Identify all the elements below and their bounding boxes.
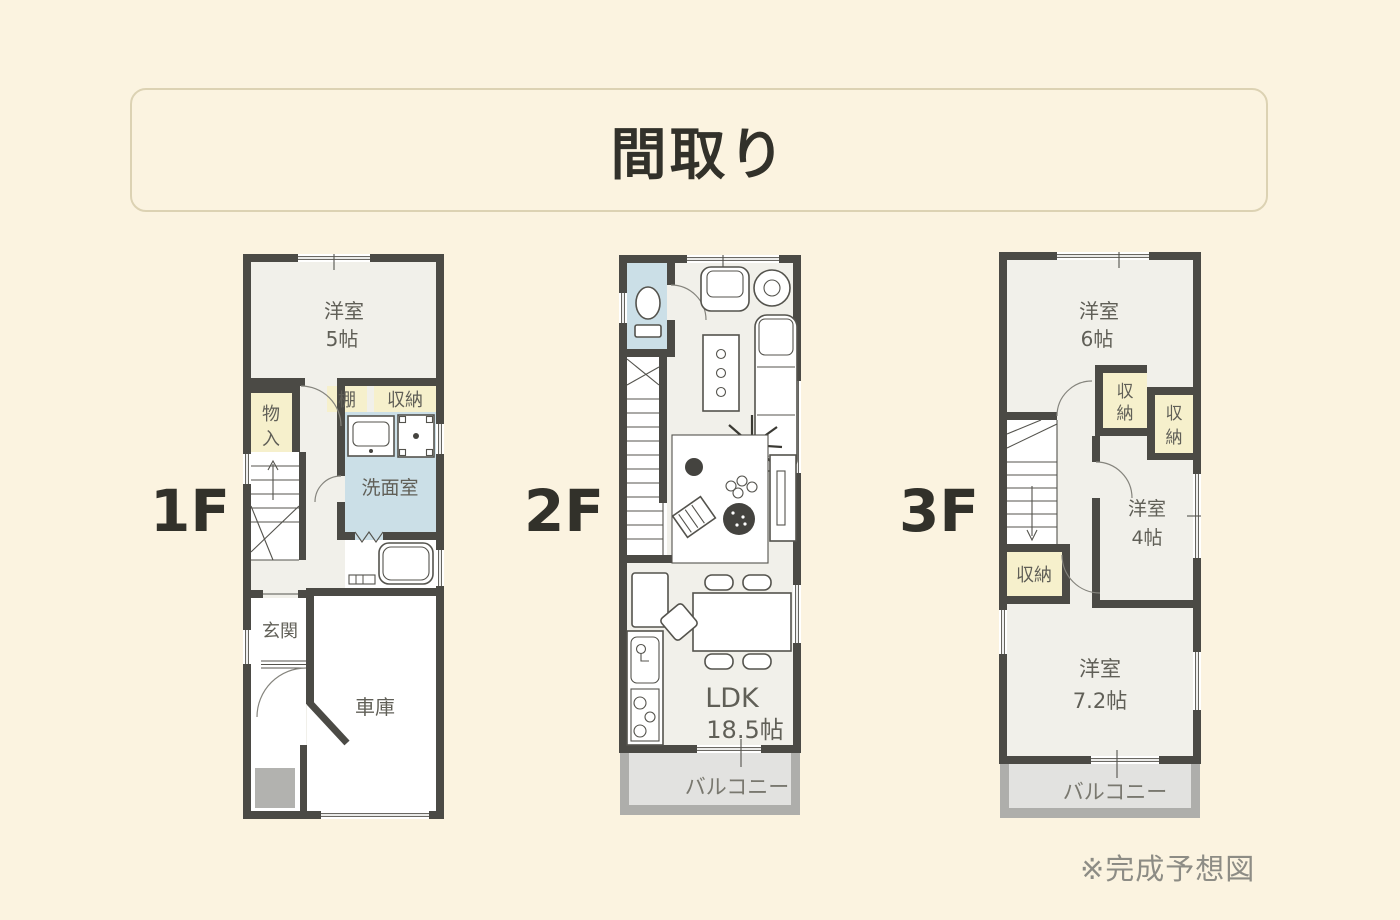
balcony-label: バルコニー (1063, 780, 1168, 804)
balcony-label: バルコニー (685, 775, 790, 799)
room-label: 収 (1166, 404, 1183, 424)
room-size-label: 18.5帖 (706, 716, 783, 744)
floor-plan-page: 間取り 1F 2F 3F (0, 0, 1400, 920)
tv-board (770, 455, 796, 541)
room-label: 収納 (1016, 565, 1052, 586)
room-label: 納 (1117, 404, 1134, 424)
chair (743, 654, 771, 669)
chair (743, 575, 771, 590)
room-size-label: 7.2帖 (1073, 689, 1127, 713)
room-label: 物 (262, 404, 280, 425)
pouf (723, 503, 755, 535)
room-label: 洋室 (1128, 498, 1166, 520)
floor-label-2f: 2F (524, 482, 604, 540)
room-size-label: 4帖 (1131, 527, 1162, 549)
chair (705, 575, 733, 590)
floor-label-1f: 1F (150, 482, 230, 540)
floor-plan-2f: LDK 18.5帖 バルコニー (619, 255, 801, 816)
meter-box (255, 768, 295, 808)
room-label: 車庫 (355, 695, 395, 719)
room-label: 洋室 (324, 299, 364, 323)
shelf-unit (703, 335, 739, 411)
cushion-round (685, 458, 703, 476)
rendering-disclaimer: ※完成予想図 (1080, 846, 1255, 888)
round-stool (754, 270, 790, 306)
bathtub-icon (379, 543, 433, 584)
floor-plan-1f: 洋室 5帖 物 入 棚 収納 洗面室 玄関 車庫 (243, 254, 444, 819)
room-label: 収納 (387, 390, 423, 411)
room-label: 棚 (338, 390, 356, 411)
staircase-area (251, 452, 299, 560)
toilet-icon (635, 325, 661, 337)
rug (672, 435, 768, 563)
room-label: 洋室 (1079, 657, 1121, 681)
floor-label-3f: 3F (899, 482, 979, 540)
room-label: LDK (705, 683, 760, 714)
page-title: 間取り (611, 110, 788, 191)
garage-door (321, 811, 429, 819)
room-label: 玄関 (262, 621, 298, 642)
chair (705, 654, 733, 669)
floor-plan-3f: 洋室 6帖 収 納 収 納 洋室 4帖 収納 洋室 7.2帖 バルコニー (999, 252, 1201, 818)
room-label: 洗面室 (361, 477, 418, 499)
dining-table (693, 593, 791, 651)
room-label: 収 (1117, 382, 1134, 402)
title-box: 間取り (130, 88, 1268, 212)
room-label: 洋室 (1079, 299, 1119, 323)
room-size-label: 5帖 (326, 327, 359, 351)
room-label: 入 (262, 429, 280, 450)
room-size-label: 6帖 (1081, 327, 1114, 351)
room-label: 納 (1166, 428, 1183, 448)
